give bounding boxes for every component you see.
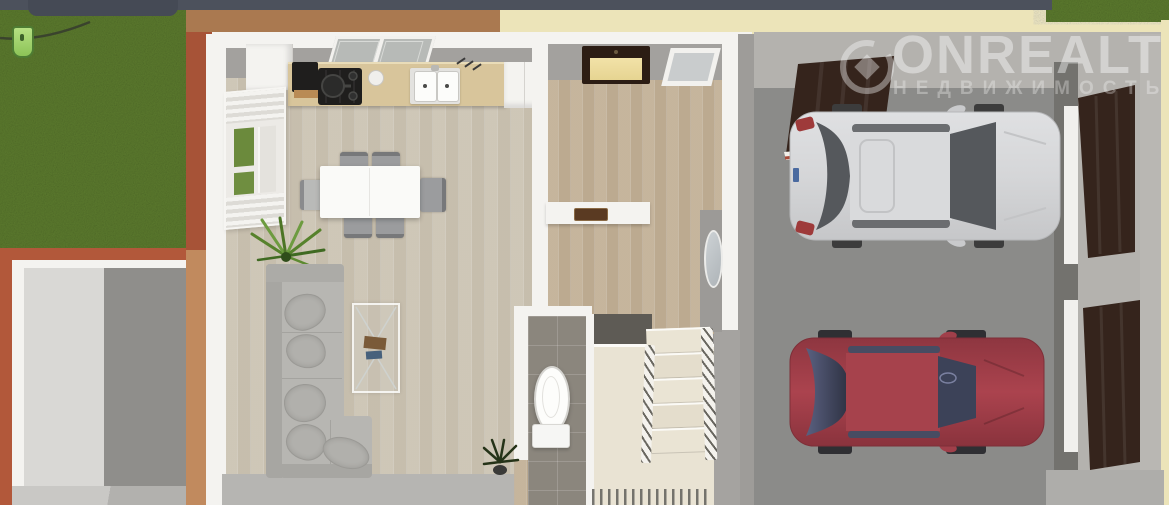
toilet-bowl (534, 366, 570, 432)
toilet-cistern (532, 424, 570, 448)
house-west-wall (206, 34, 226, 505)
gas-stove (318, 68, 362, 105)
rear-window (938, 356, 976, 428)
stove-pot (322, 75, 344, 97)
stairs-wall-strip (586, 314, 594, 505)
storage-floor (12, 486, 188, 505)
windshield (950, 122, 996, 230)
watermark-brand: ONREALT (892, 28, 1163, 82)
dining-table (320, 166, 420, 218)
double-sink (410, 68, 460, 104)
understairs-shadow (590, 314, 652, 345)
floorplan-render: ONREALT НЕДВИЖИМОСТЬ (0, 0, 1169, 505)
refrigerator (246, 44, 293, 90)
living-window-blinds (224, 87, 286, 230)
glass-coffee-table (352, 303, 400, 393)
sink-drain (423, 84, 427, 88)
sofa-cushion-seam (282, 332, 342, 333)
window-pane-grass (234, 127, 254, 167)
sofa-armrest-top (266, 264, 344, 282)
garage-floor-bottom-edge (1046, 470, 1164, 505)
stair-bottom-edge (592, 489, 712, 505)
watermark-subtitle: НЕДВИЖИМОСТЬ (893, 79, 1168, 98)
cabinet-seam (524, 62, 525, 108)
window-pane-grass (234, 171, 254, 195)
skylight-window (661, 48, 720, 86)
sink-drain (445, 84, 449, 88)
car-roof (850, 132, 952, 220)
magazine (366, 350, 383, 359)
back-lawn-strip (1046, 0, 1169, 22)
garage-side-door-lower (1074, 294, 1144, 470)
door-knob (614, 50, 618, 54)
map-marker-dot (20, 34, 24, 41)
living-room-floor-shadow (222, 474, 522, 505)
sofa-cushion-seam (282, 378, 342, 379)
doormat (574, 208, 608, 221)
top-bar-tab (28, 0, 178, 16)
car-roof (846, 353, 940, 431)
range-hood-shelf (294, 90, 318, 98)
hall-west-wall (532, 40, 548, 316)
blind-slats-top (226, 89, 284, 124)
stairs-east-wall (714, 330, 740, 505)
front-door (582, 46, 650, 84)
sofa-backrest-left (266, 264, 282, 478)
floor-plant (480, 436, 522, 480)
front-door-glow (590, 58, 642, 80)
range-hood (292, 62, 318, 92)
silver-car (788, 102, 1062, 250)
storage-inner-wall-dark (104, 268, 188, 490)
garage-side-door-upper (1074, 80, 1144, 266)
map-marker-icon (12, 26, 34, 58)
west-wall-tan (186, 250, 207, 505)
dining-chair (420, 178, 446, 212)
diamond-circle-logo (838, 36, 896, 98)
toilet-seat-ring (542, 376, 560, 418)
window-frame-column (258, 125, 276, 193)
table-seam (369, 168, 370, 216)
sink-faucet (431, 65, 439, 71)
storage-inner-wall-light (24, 268, 104, 490)
kettle (368, 70, 384, 86)
magazine (363, 336, 386, 350)
red-car (788, 330, 1046, 454)
house-east-wall-shade (738, 34, 754, 505)
wall-mirror (704, 230, 723, 288)
